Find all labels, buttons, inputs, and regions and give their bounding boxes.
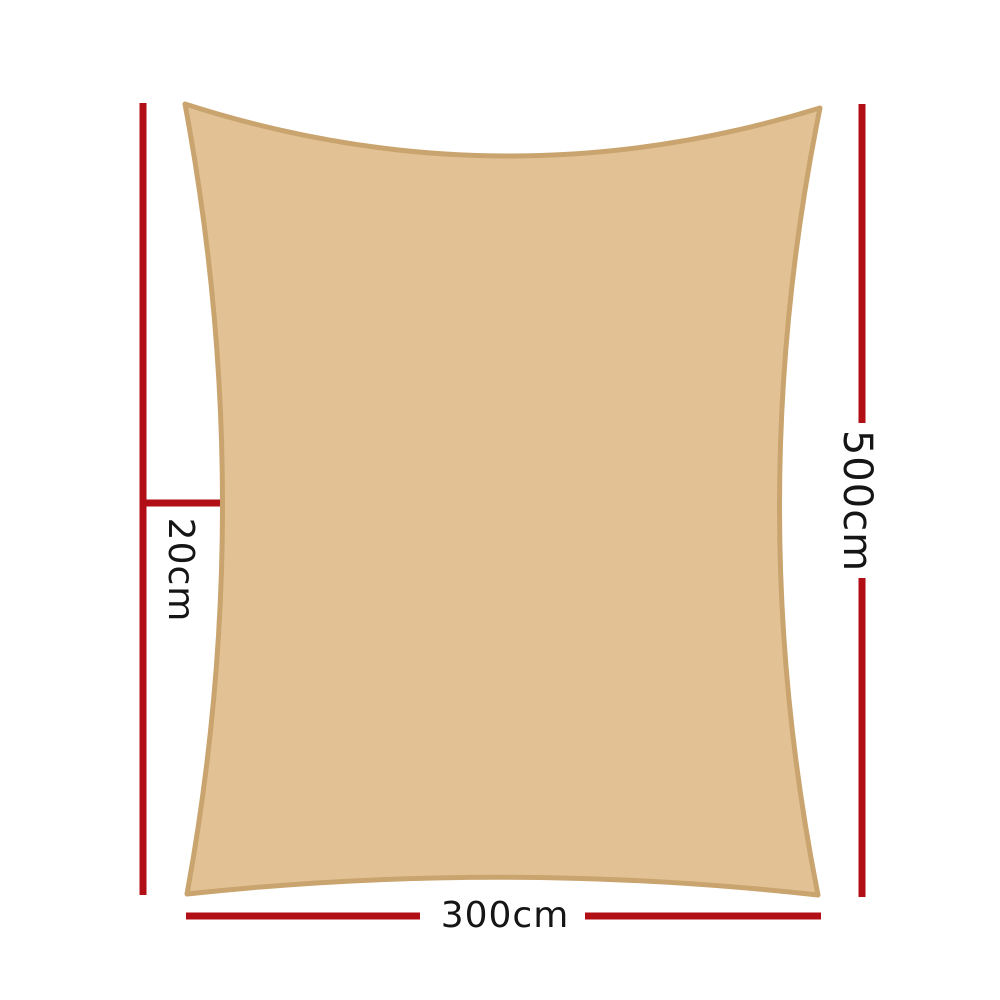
shade-sail-shape-group — [185, 104, 820, 895]
curve-depth-label: 20cm — [162, 518, 198, 623]
width-label: 300cm — [441, 898, 570, 934]
shade-sail-dimension-diagram: 500cm 300cm 20cm — [0, 0, 1000, 1000]
shade-sail-shape — [185, 104, 820, 895]
height-label: 500cm — [837, 430, 877, 572]
